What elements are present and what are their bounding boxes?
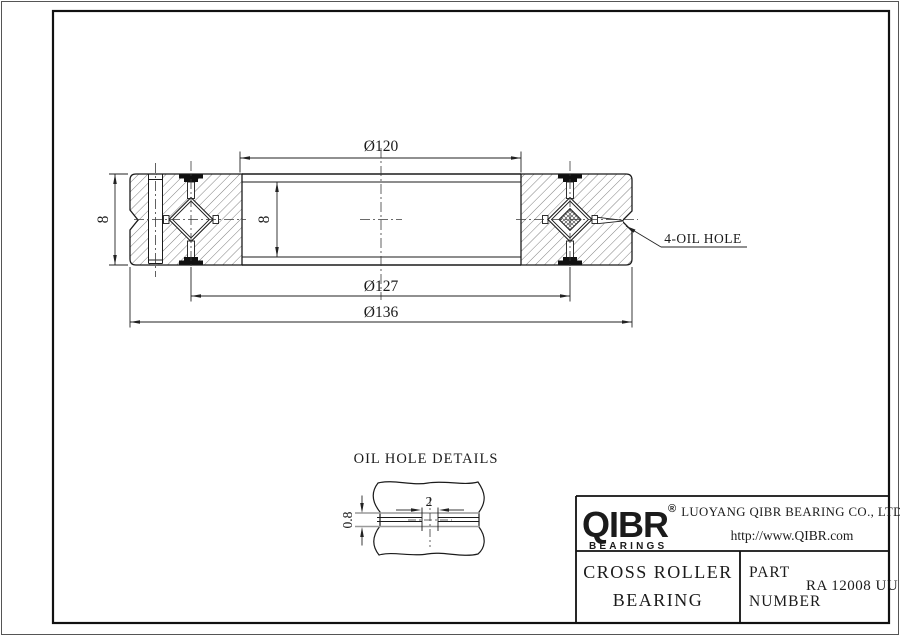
drawing-canvas: Ø120 Ø127 Ø136 8 8 4-OIL HOLE OIL HOLE D… (0, 0, 900, 636)
oil-hole-note-label: 4-OIL HOLE (664, 231, 742, 246)
logo-subtext: BEARINGS (589, 541, 667, 552)
dim-width-inner-label: 8 (256, 215, 273, 223)
detail-dim-depth-label: 0.8 (340, 511, 355, 528)
dim-bore-label: Ø120 (364, 138, 399, 155)
detail-title: OIL HOLE DETAILS (354, 451, 499, 467)
dim-width-outer-label: 8 (95, 215, 112, 223)
company-name: LUOYANG QIBR BEARING CO., LTD (681, 505, 900, 519)
part-label-line2: NUMBER (749, 593, 821, 610)
detail-dim-width-label: 2 (426, 494, 433, 509)
oil-hole-channel (598, 217, 624, 223)
registered-mark: ® (668, 503, 676, 515)
product-name-line2: BEARING (613, 590, 704, 610)
part-number-value: RA 12008 UU (806, 578, 898, 594)
company-website: http://www.QIBR.com (731, 528, 854, 543)
dim-od-label: Ø136 (364, 304, 399, 321)
dim-pitch-label: Ø127 (364, 278, 399, 295)
logo-text: QIBR (582, 504, 669, 545)
company-logo: QIBR ® BEARINGS (582, 503, 676, 552)
drawing-sheet: Ø120 Ø127 Ø136 8 8 4-OIL HOLE OIL HOLE D… (0, 0, 900, 636)
part-label-line1: PART (749, 564, 790, 581)
product-name-line1: CROSS ROLLER (583, 562, 733, 582)
